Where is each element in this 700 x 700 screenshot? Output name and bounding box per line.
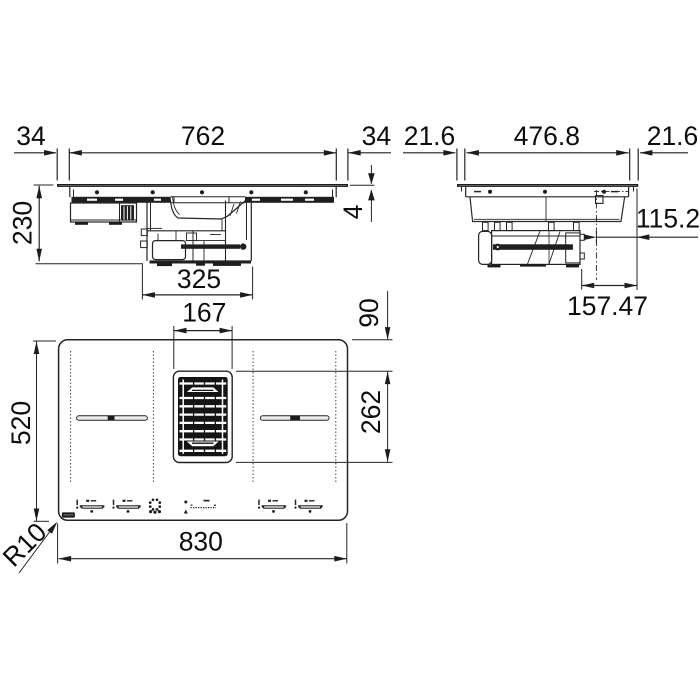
svg-text:167: 167 bbox=[182, 298, 226, 328]
svg-text:21.6: 21.6 bbox=[404, 121, 456, 151]
svg-text:520: 520 bbox=[6, 401, 36, 445]
svg-text:157.47: 157.47 bbox=[567, 291, 648, 321]
svg-text:34: 34 bbox=[362, 121, 391, 151]
svg-text:4: 4 bbox=[338, 205, 368, 220]
svg-text:21.6: 21.6 bbox=[647, 121, 699, 151]
svg-text:325: 325 bbox=[177, 264, 221, 294]
svg-text:115.2: 115.2 bbox=[636, 204, 700, 234]
svg-text:90: 90 bbox=[354, 298, 384, 327]
svg-text:34: 34 bbox=[16, 121, 45, 151]
svg-text:762: 762 bbox=[181, 121, 225, 151]
svg-text:262: 262 bbox=[356, 390, 386, 434]
svg-text:830: 830 bbox=[179, 527, 223, 557]
svg-text:230: 230 bbox=[8, 201, 38, 245]
svg-text:476.8: 476.8 bbox=[514, 121, 580, 151]
